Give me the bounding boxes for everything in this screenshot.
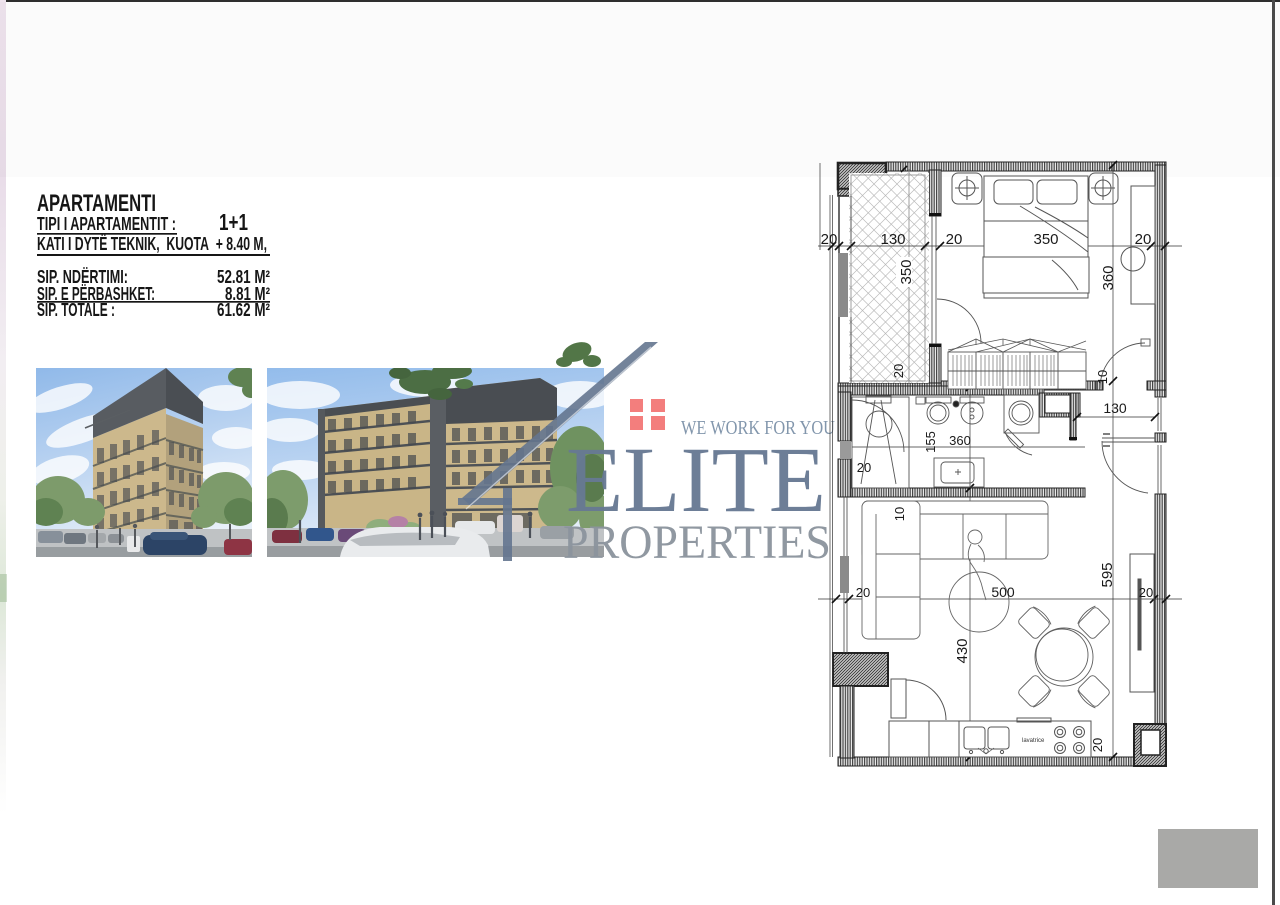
svg-text:20: 20 [857, 460, 871, 475]
svg-text:KATI I DYTË TEKNIK, KUOTA +: KATI I DYTË TEKNIK, KUOTA + 8.40 M, [37, 234, 267, 254]
svg-text:350: 350 [1033, 231, 1058, 248]
svg-text:20: 20 [946, 231, 963, 248]
svg-text:20: 20 [1090, 738, 1105, 752]
svg-text:130: 130 [880, 231, 905, 248]
svg-text:430: 430 [954, 638, 971, 663]
svg-text:360: 360 [949, 433, 971, 448]
svg-text:360: 360 [1100, 265, 1117, 290]
svg-text:10: 10 [892, 507, 907, 521]
svg-text:20: 20 [1139, 585, 1153, 600]
svg-text:500: 500 [991, 584, 1015, 600]
svg-text:lavatrice: lavatrice [1022, 738, 1045, 744]
svg-text:1+1: 1+1 [219, 209, 248, 235]
svg-text:TIPI I APARTAMENTIT :: TIPI I APARTAMENTIT : [37, 214, 176, 234]
svg-text:20: 20 [1135, 231, 1152, 248]
svg-text:155: 155 [923, 431, 938, 453]
svg-text:10: 10 [1095, 370, 1110, 384]
svg-text:20: 20 [856, 585, 870, 600]
svg-text:130: 130 [1103, 400, 1127, 416]
svg-text:350: 350 [898, 259, 915, 284]
svg-text:APARTAMENTI: APARTAMENTI [37, 190, 156, 217]
svg-text:20: 20 [821, 231, 838, 248]
svg-text:61.62 M²: 61.62 M² [217, 300, 270, 320]
svg-text:SIP. TOTALE :: SIP. TOTALE : [37, 300, 115, 320]
svg-text:595: 595 [1099, 562, 1116, 587]
svg-text:20: 20 [891, 364, 906, 378]
svg-text:PROPERTIES: PROPERTIES [563, 516, 831, 569]
